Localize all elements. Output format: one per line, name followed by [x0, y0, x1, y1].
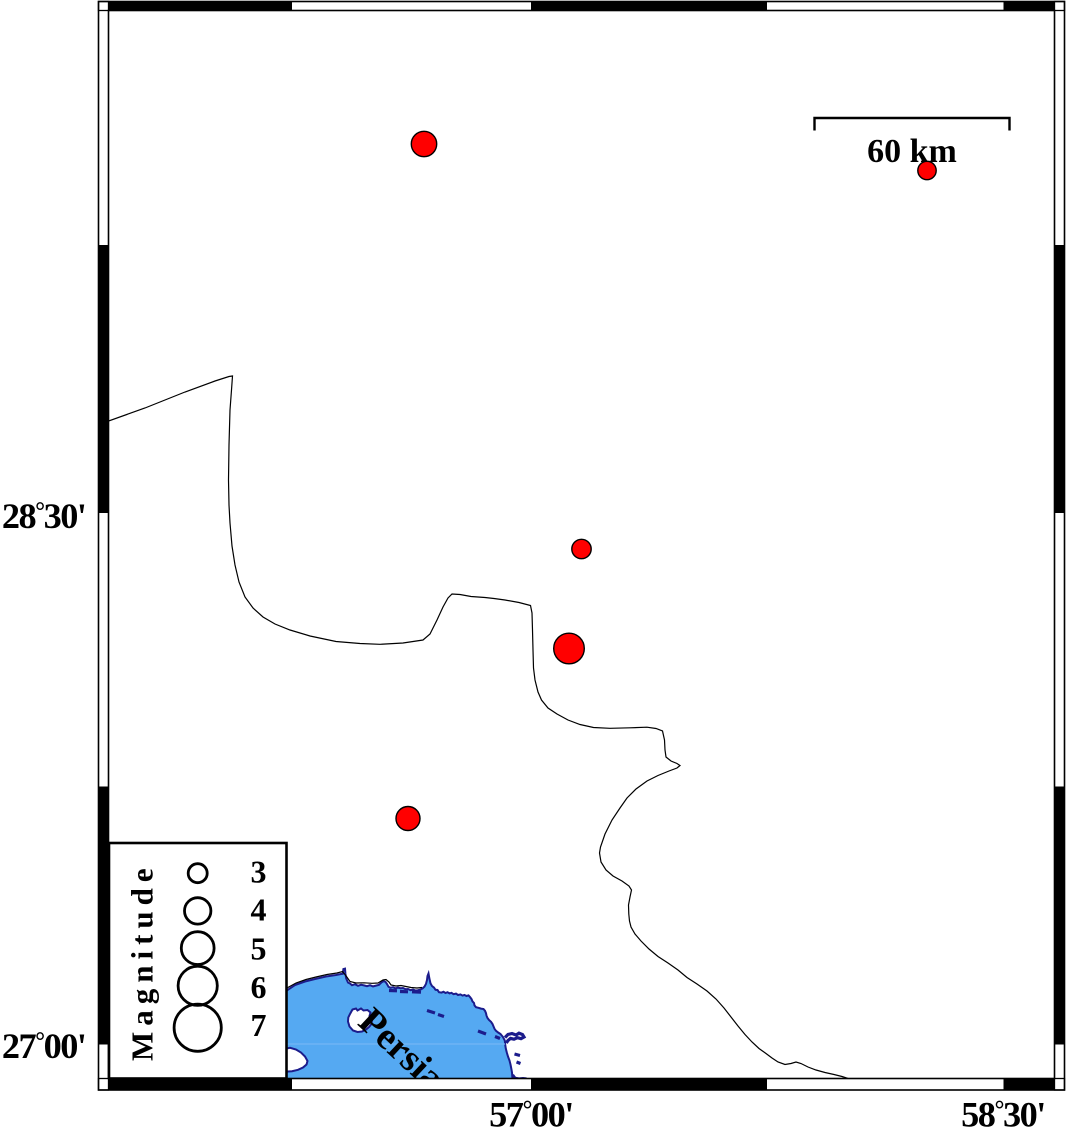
svg-text:4: 4: [251, 892, 267, 928]
svg-text:7: 7: [251, 1007, 267, 1043]
svg-text:Magnitude: Magnitude: [125, 862, 160, 1061]
svg-text:57°00': 57°00': [489, 1095, 573, 1128]
svg-text:5: 5: [251, 931, 267, 967]
svg-text:3: 3: [251, 854, 267, 890]
svg-text:28°30': 28°30': [2, 496, 86, 536]
svg-text:60 km: 60 km: [867, 133, 957, 170]
svg-text:6: 6: [251, 969, 267, 1005]
svg-text:58°30': 58°30': [961, 1095, 1045, 1128]
svg-text:27°00': 27°00': [2, 1026, 86, 1066]
